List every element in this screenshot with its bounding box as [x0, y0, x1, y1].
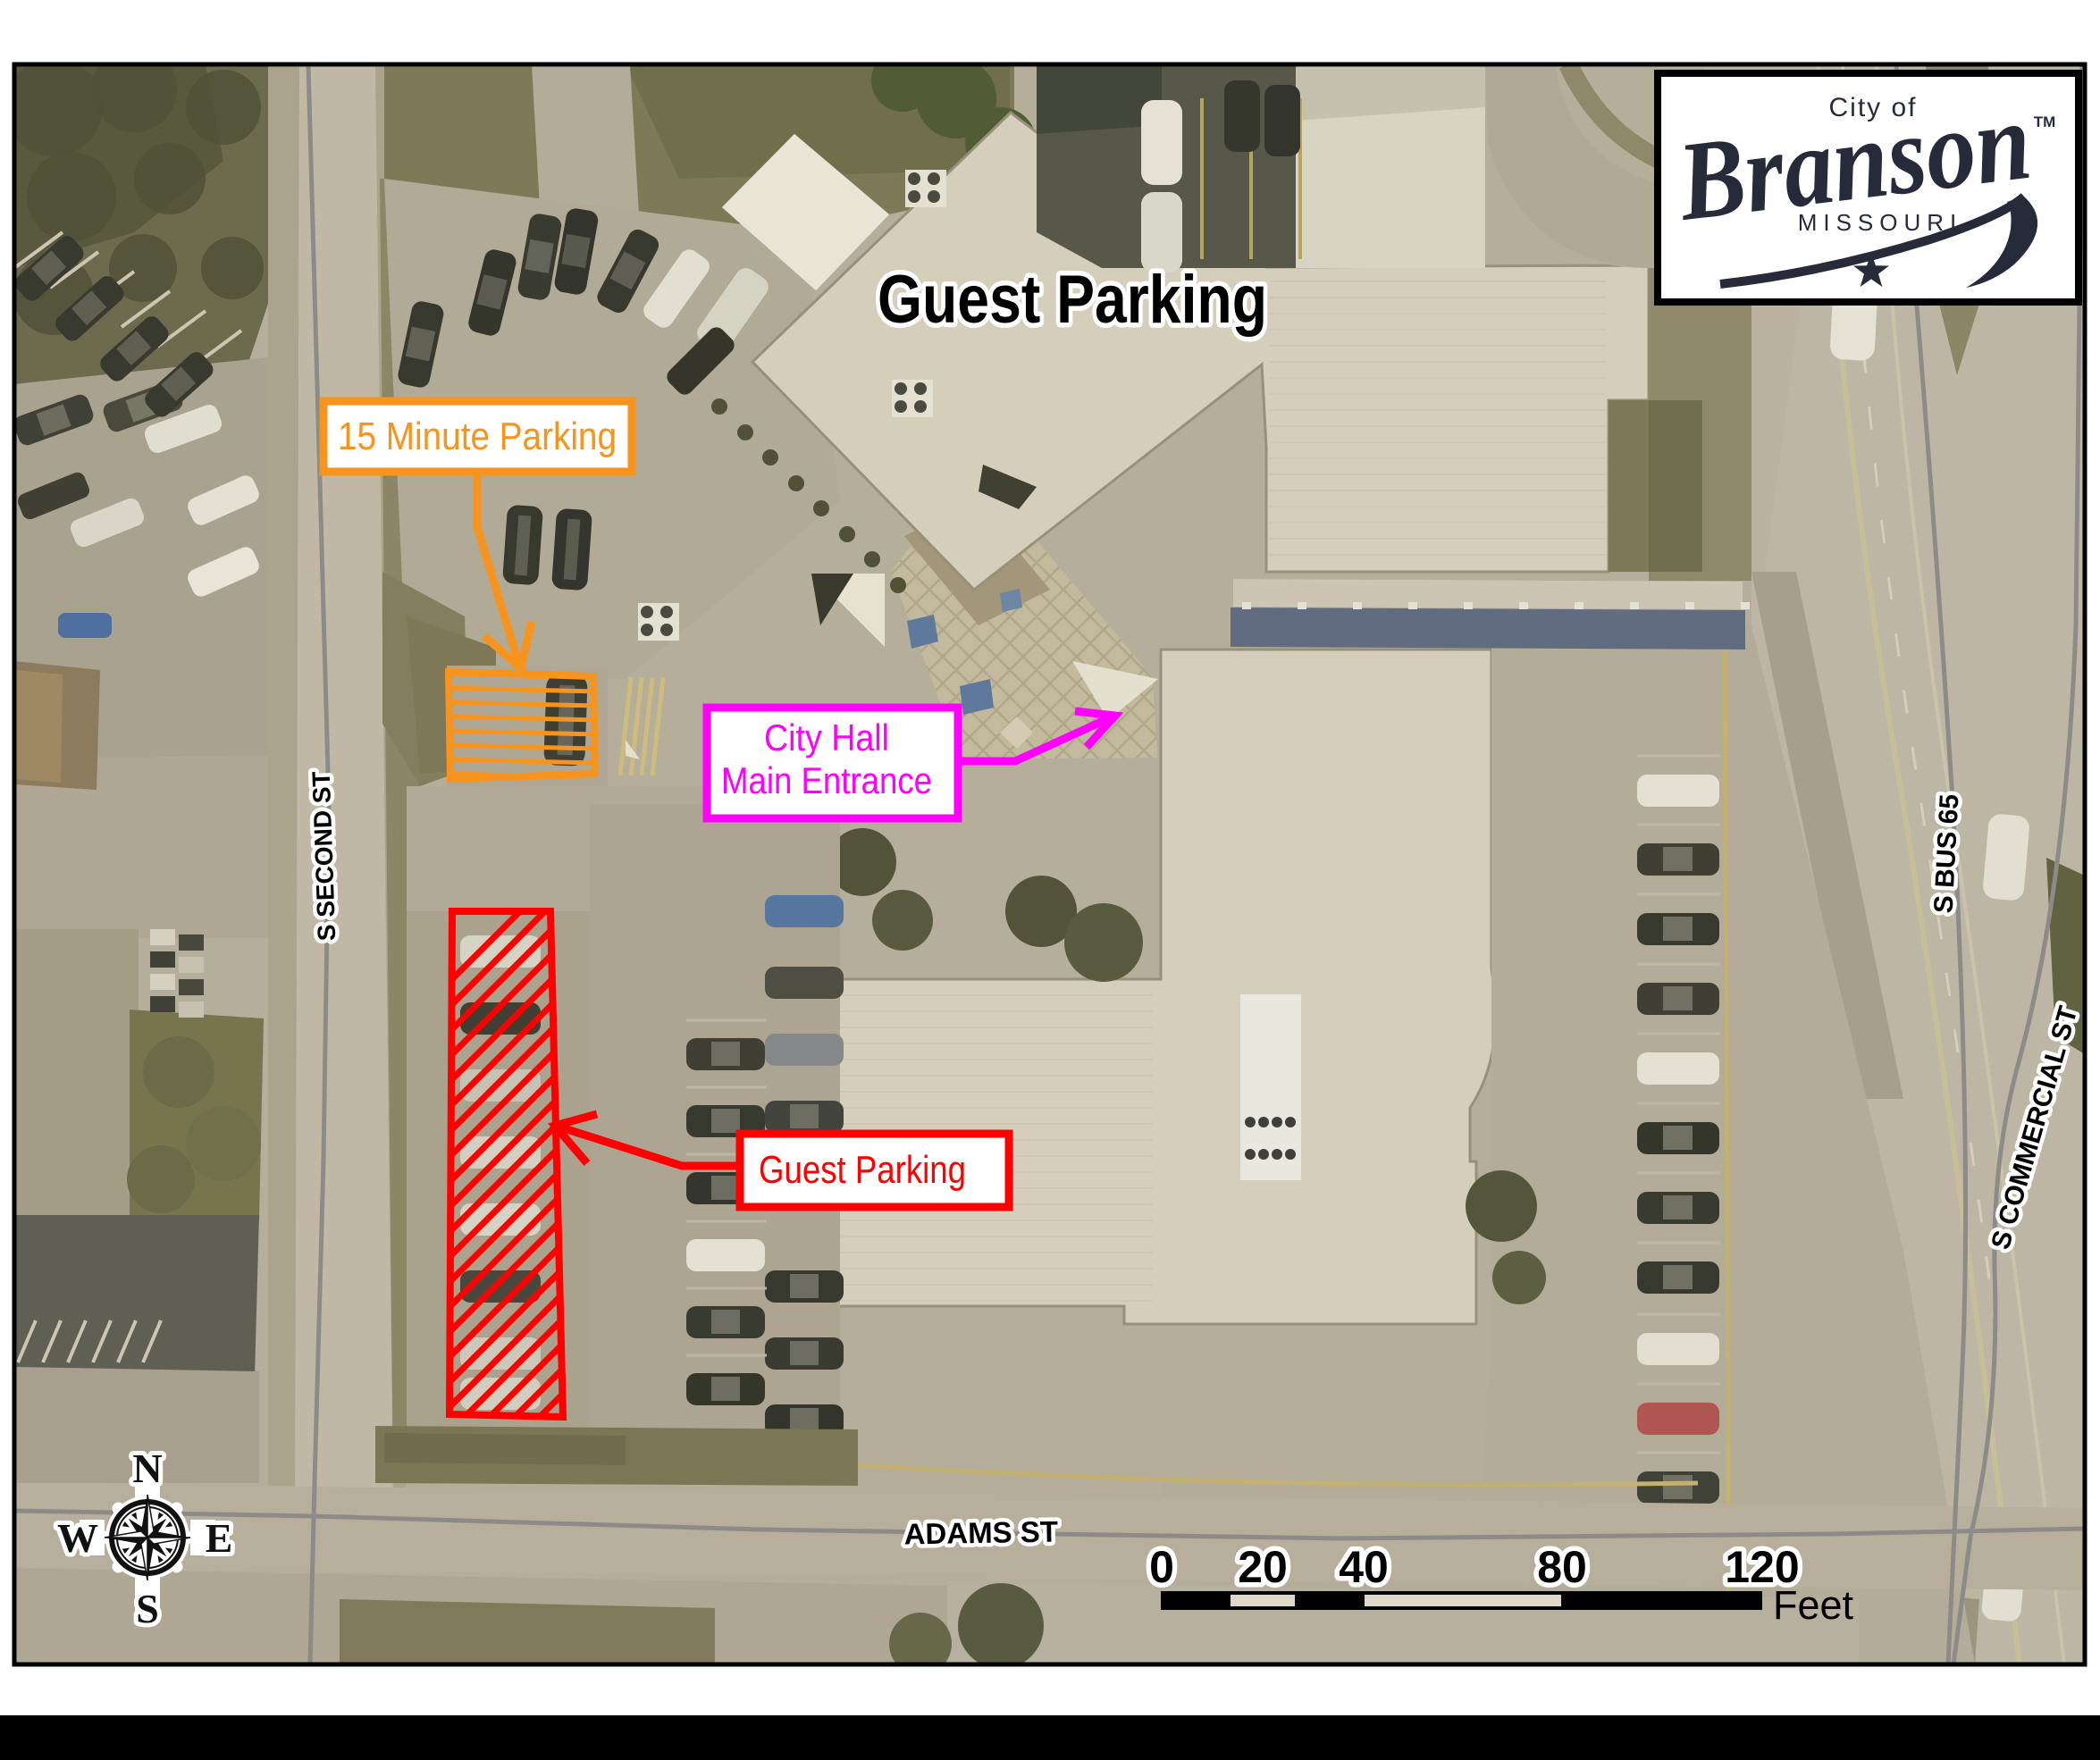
- svg-text:Guest Parking: Guest Parking: [878, 262, 1267, 338]
- svg-text:40: 40: [1339, 1542, 1389, 1592]
- svg-text:Feet: Feet: [1773, 1582, 1854, 1628]
- svg-text:E: E: [206, 1515, 233, 1561]
- svg-text:80: 80: [1537, 1542, 1587, 1592]
- svg-text:N: N: [132, 1446, 162, 1491]
- svg-text:0: 0: [1149, 1542, 1174, 1592]
- svg-text:S SECOND ST: S SECOND ST: [307, 771, 341, 942]
- svg-text:Guest Parking: Guest Parking: [759, 1148, 966, 1192]
- svg-text:20: 20: [1238, 1542, 1288, 1592]
- svg-text:TM: TM: [2034, 113, 2056, 130]
- svg-text:S: S: [136, 1586, 159, 1631]
- svg-text:ADAMS ST: ADAMS ST: [903, 1515, 1058, 1551]
- svg-text:Main Entrance: Main Entrance: [721, 759, 932, 801]
- svg-text:15 Minute Parking: 15 Minute Parking: [338, 415, 617, 458]
- svg-text:MISSOURI: MISSOURI: [1798, 209, 1963, 236]
- svg-text:City Hall: City Hall: [764, 717, 889, 758]
- svg-text:S BUS 65: S BUS 65: [1929, 793, 1965, 914]
- svg-text:W: W: [57, 1515, 98, 1561]
